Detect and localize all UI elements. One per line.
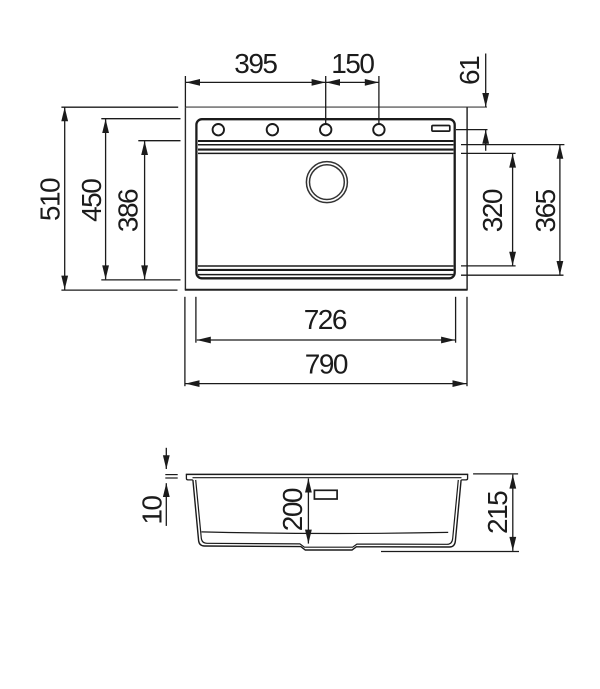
svg-text:150: 150 [331, 48, 374, 79]
svg-text:10: 10 [136, 496, 167, 525]
svg-text:200: 200 [277, 488, 308, 531]
svg-text:726: 726 [304, 304, 347, 335]
svg-text:395: 395 [234, 48, 277, 79]
svg-text:386: 386 [113, 189, 144, 232]
svg-text:510: 510 [34, 178, 65, 221]
svg-text:365: 365 [530, 189, 561, 232]
svg-text:215: 215 [482, 491, 513, 534]
svg-text:61: 61 [454, 56, 485, 85]
svg-text:320: 320 [477, 189, 508, 232]
svg-text:790: 790 [305, 349, 348, 380]
svg-text:450: 450 [76, 179, 107, 222]
